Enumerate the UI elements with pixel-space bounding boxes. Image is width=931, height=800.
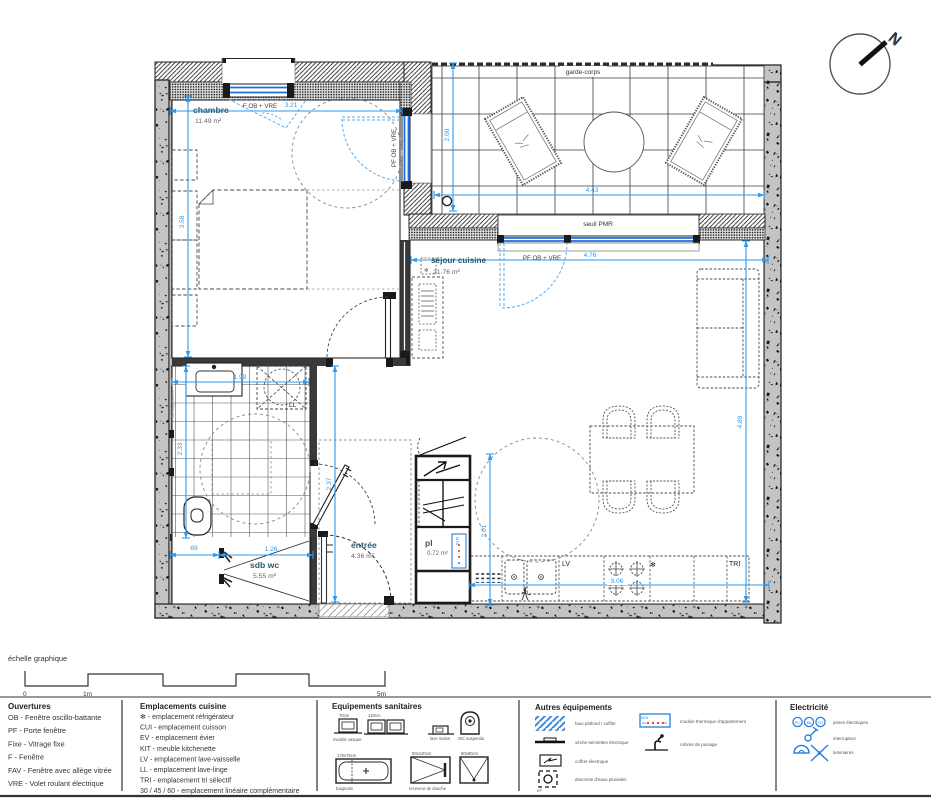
svg-text:MTA: MTA	[641, 716, 649, 720]
svg-text:PF OB + VRE: PF OB + VRE	[391, 129, 398, 167]
svg-text:70cm: 70cm	[339, 713, 350, 718]
svg-text:TRI: TRI	[729, 561, 740, 568]
svg-text:luminaires: luminaires	[833, 750, 854, 755]
svg-text:3.21: 3.21	[285, 102, 298, 109]
svg-text:chambre: chambre	[193, 105, 229, 115]
svg-text:FAV - Fenêtre avec allège vitr: FAV - Fenêtre avec allège vitrée	[8, 766, 112, 775]
svg-text:Electricité: Electricité	[790, 703, 829, 712]
svg-text:module thermique d'appartement: module thermique d'appartement	[680, 719, 747, 724]
svg-text:baignoire: baignoire	[336, 786, 354, 791]
svg-text:Autres équipements: Autres équipements	[535, 703, 612, 712]
svg-text:WC suspendu: WC suspendu	[458, 736, 485, 741]
svg-text:coffret électrique: coffret électrique	[575, 759, 609, 764]
svg-text:3.58: 3.58	[179, 215, 186, 228]
svg-text:lave mains: lave mains	[430, 736, 450, 741]
svg-text:69: 69	[190, 545, 198, 552]
svg-text:30 / 45 / 60 - emplacement lin: 30 / 45 / 60 - emplacement linéaire comp…	[140, 788, 300, 795]
svg-text:pl: pl	[425, 538, 433, 548]
svg-text:robinet de puisage: robinet de puisage	[680, 742, 718, 747]
svg-text:BA: BA	[807, 721, 812, 725]
svg-text:F - Fenêtre: F - Fenêtre	[8, 753, 44, 762]
svg-text:séjour cuisine: séjour cuisine	[431, 256, 487, 265]
svg-text:3.06: 3.06	[611, 578, 624, 585]
svg-text:4.89: 4.89	[737, 415, 744, 428]
svg-text:RJ: RJ	[818, 721, 823, 725]
svg-text:LL: LL	[289, 402, 297, 409]
svg-text:prises électriques: prises électriques	[833, 720, 869, 725]
svg-text:Emplacements cuisine: Emplacements cuisine	[140, 702, 227, 711]
svg-text:sdb wc: sdb wc	[250, 560, 279, 570]
svg-text:CUI - emplacement cuisson: CUI - emplacement cuisson	[140, 725, 226, 732]
svg-text:EV - emplacement évier: EV - emplacement évier	[140, 735, 215, 742]
svg-text:90x120cm: 90x120cm	[412, 751, 432, 756]
svg-text:90x90cm: 90x90cm	[461, 751, 479, 756]
svg-text:meuble vasque: meuble vasque	[333, 737, 362, 742]
svg-text:5.55 m²: 5.55 m²	[253, 573, 277, 580]
svg-text:✻: ✻	[650, 561, 656, 569]
svg-text:receveur de douche: receveur de douche	[409, 786, 447, 791]
svg-text:4.36 m²: 4.36 m²	[351, 553, 375, 560]
svg-text:Carrelage faïence: Carrelage faïence	[171, 390, 175, 418]
svg-text:LV - emplacement lave-vaissell: LV - emplacement lave-vaisselle	[140, 756, 240, 763]
svg-text:2.33: 2.33	[177, 442, 184, 455]
svg-text:PF OB + VRE: PF OB + VRE	[523, 255, 561, 262]
svg-text:échelle graphique: échelle graphique	[8, 654, 67, 663]
svg-text:Fixe - Vitrage fixe: Fixe - Vitrage fixe	[8, 739, 65, 748]
svg-text:Equipements sanitaires: Equipements sanitaires	[332, 702, 422, 711]
svg-text:✻: ✻	[424, 267, 429, 274]
svg-text:11.49 m²: 11.49 m²	[195, 118, 222, 125]
svg-text:PC: PC	[795, 721, 800, 725]
svg-text:seuil PMR: seuil PMR	[583, 221, 613, 228]
svg-text:4.76: 4.76	[584, 252, 597, 259]
svg-text:F OB + VRE: F OB + VRE	[243, 103, 277, 110]
svg-text:sèche-serviettes électrique: sèche-serviettes électrique	[575, 740, 629, 745]
svg-text:OB - Fenêtre oscillo-battante: OB - Fenêtre oscillo-battante	[8, 713, 101, 722]
svg-text:garde-corps: garde-corps	[566, 69, 601, 76]
svg-text:2.00: 2.00	[444, 128, 451, 141]
svg-text:LL - emplacement lave-linge: LL - emplacement lave-linge	[140, 767, 228, 774]
svg-text:entrée: entrée	[351, 540, 377, 550]
svg-text:2.01: 2.01	[481, 524, 488, 537]
svg-text:✻ - emplacement réfrigérateur: ✻ - emplacement réfrigérateur	[140, 713, 235, 721]
svg-text:0.72 m²: 0.72 m²	[427, 550, 448, 557]
svg-text:descente d'eaux pluviales: descente d'eaux pluviales	[575, 777, 627, 782]
svg-text:2.37: 2.37	[326, 477, 333, 490]
svg-text:KIT - meuble kitchenette: KIT - meuble kitchenette	[140, 746, 216, 753]
svg-text:PF - Porte fenêtre: PF - Porte fenêtre	[8, 726, 66, 735]
svg-text:170x75cm: 170x75cm	[337, 753, 357, 758]
svg-text:4.43: 4.43	[586, 187, 599, 194]
svg-text:interrupteur: interrupteur	[833, 736, 857, 741]
svg-text:1.98: 1.98	[234, 374, 247, 381]
svg-text:1.26: 1.26	[265, 546, 278, 553]
svg-text:LV: LV	[562, 561, 570, 568]
svg-text:21.76 m²: 21.76 m²	[433, 269, 461, 276]
svg-text:EP: EP	[537, 789, 543, 793]
svg-text:TRI - emplacement tri sélectif: TRI - emplacement tri sélectif	[140, 778, 231, 785]
svg-text:Ouvertures: Ouvertures	[8, 702, 51, 711]
svg-text:faux-plafond / soffite: faux-plafond / soffite	[575, 721, 616, 726]
svg-text:120cm: 120cm	[368, 713, 381, 718]
svg-text:VRE - Volet roulant électrique: VRE - Volet roulant électrique	[8, 779, 104, 788]
